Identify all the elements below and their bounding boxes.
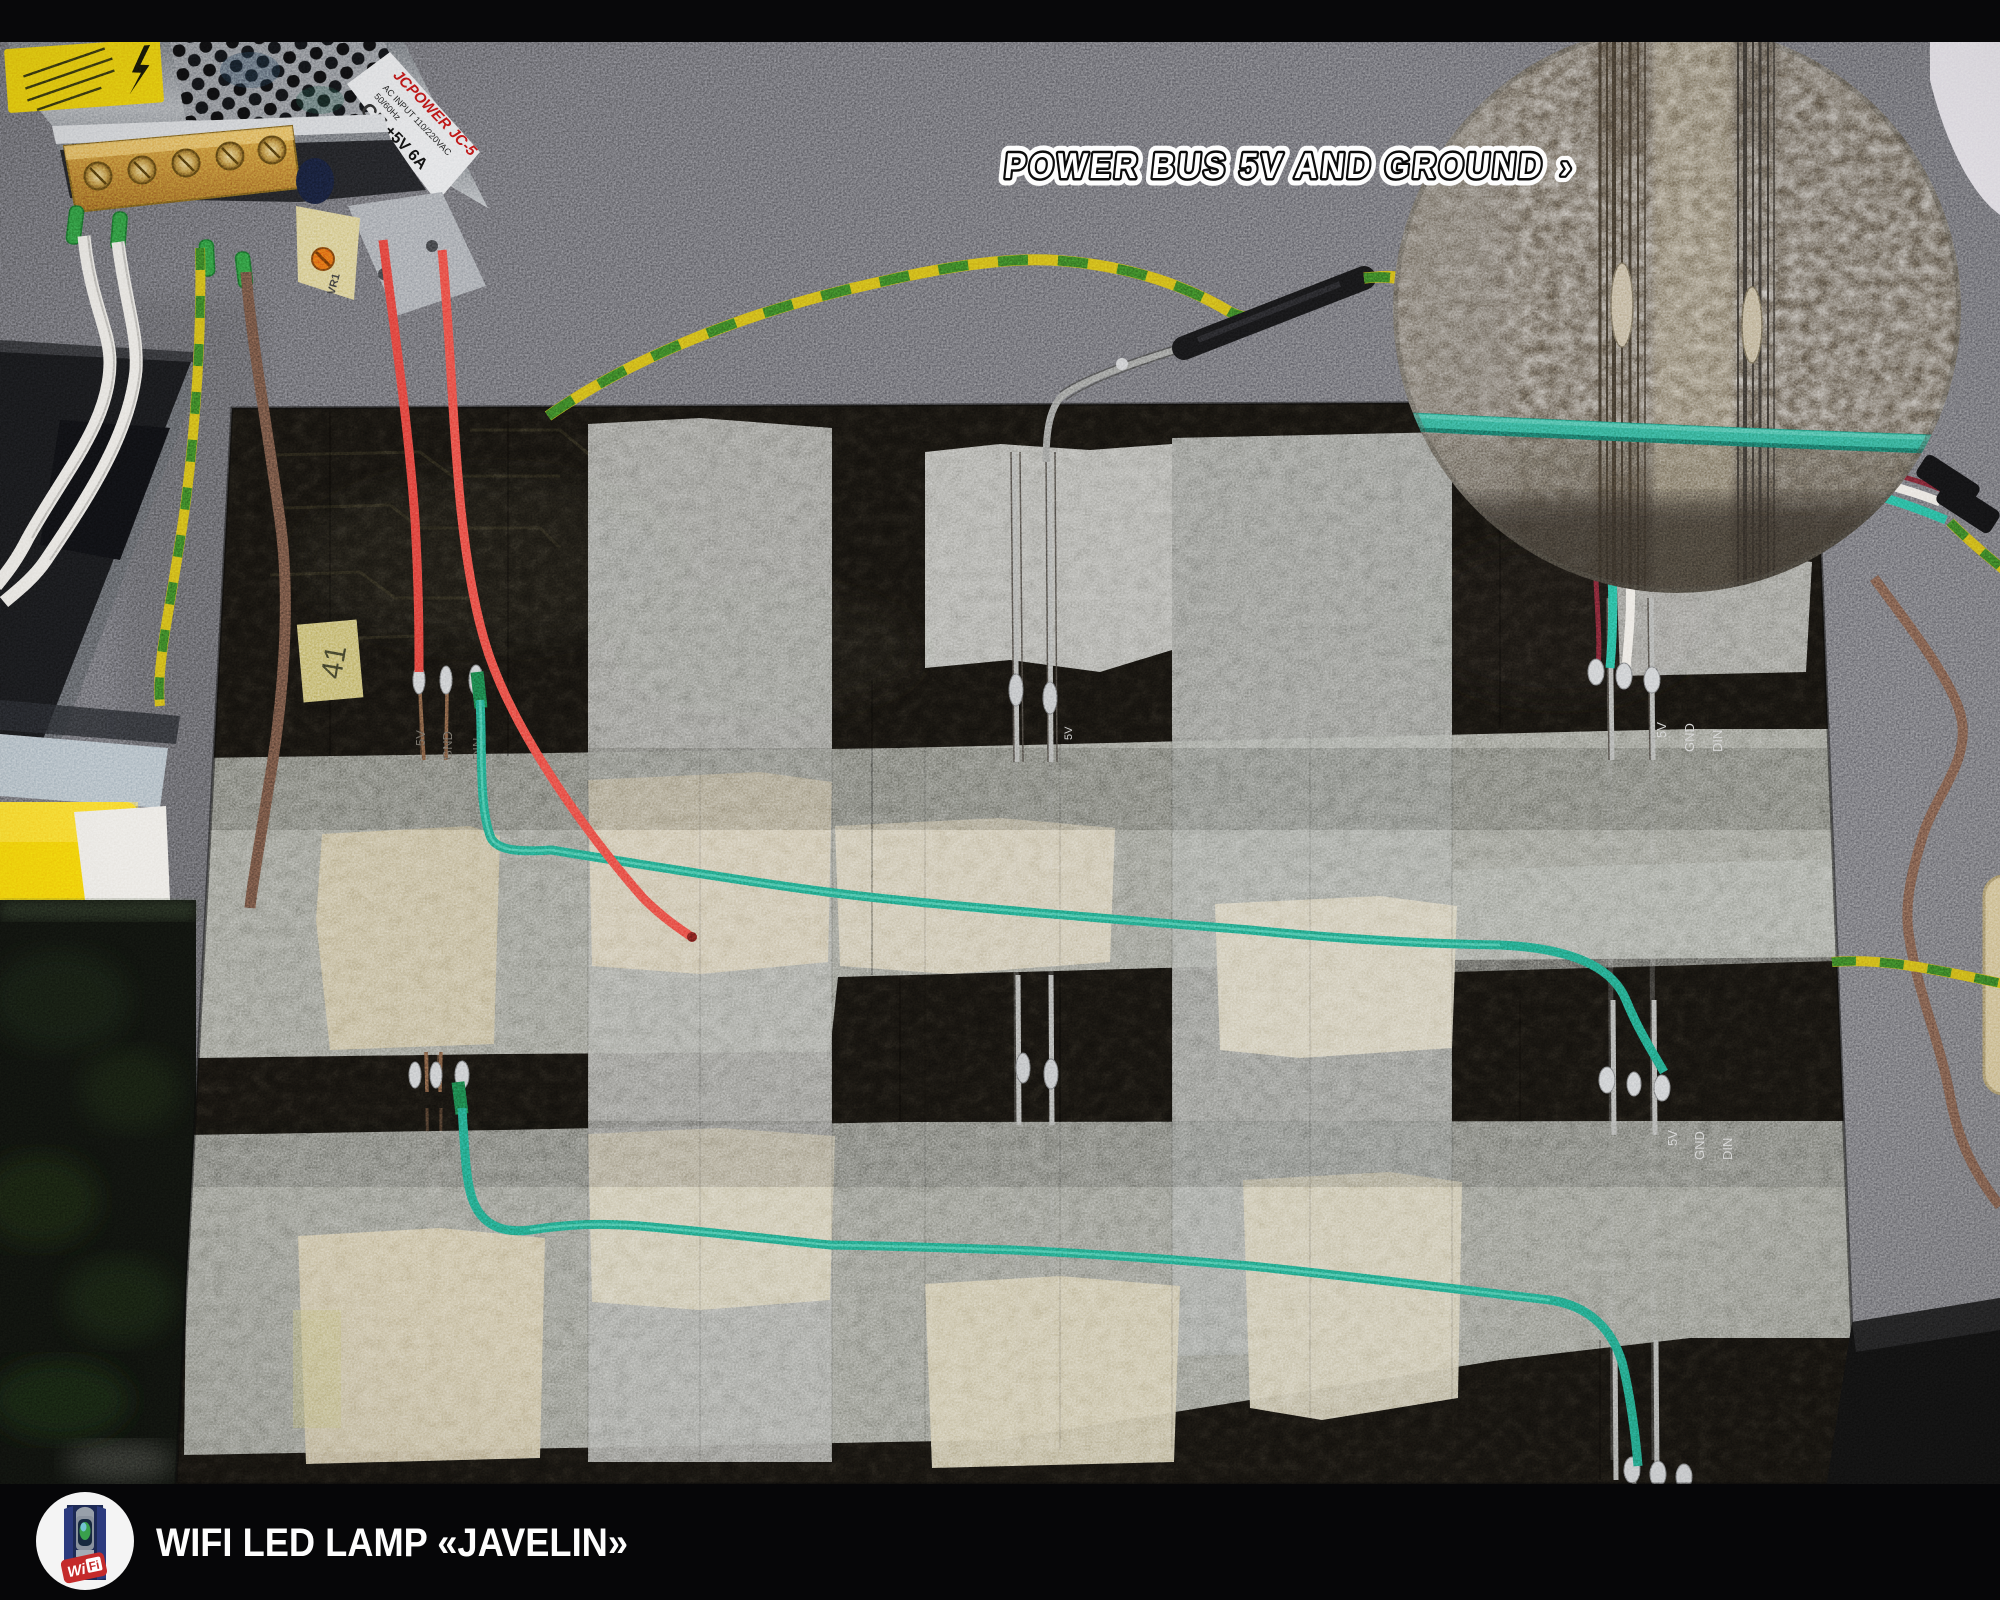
svg-text:POWER BUS 5V AND GROUND: POWER BUS 5V AND GROUND <box>1002 145 1546 186</box>
svg-text:WIFI LED LAMP «JAVELIN»: WIFI LED LAMP «JAVELIN» <box>156 1521 628 1565</box>
